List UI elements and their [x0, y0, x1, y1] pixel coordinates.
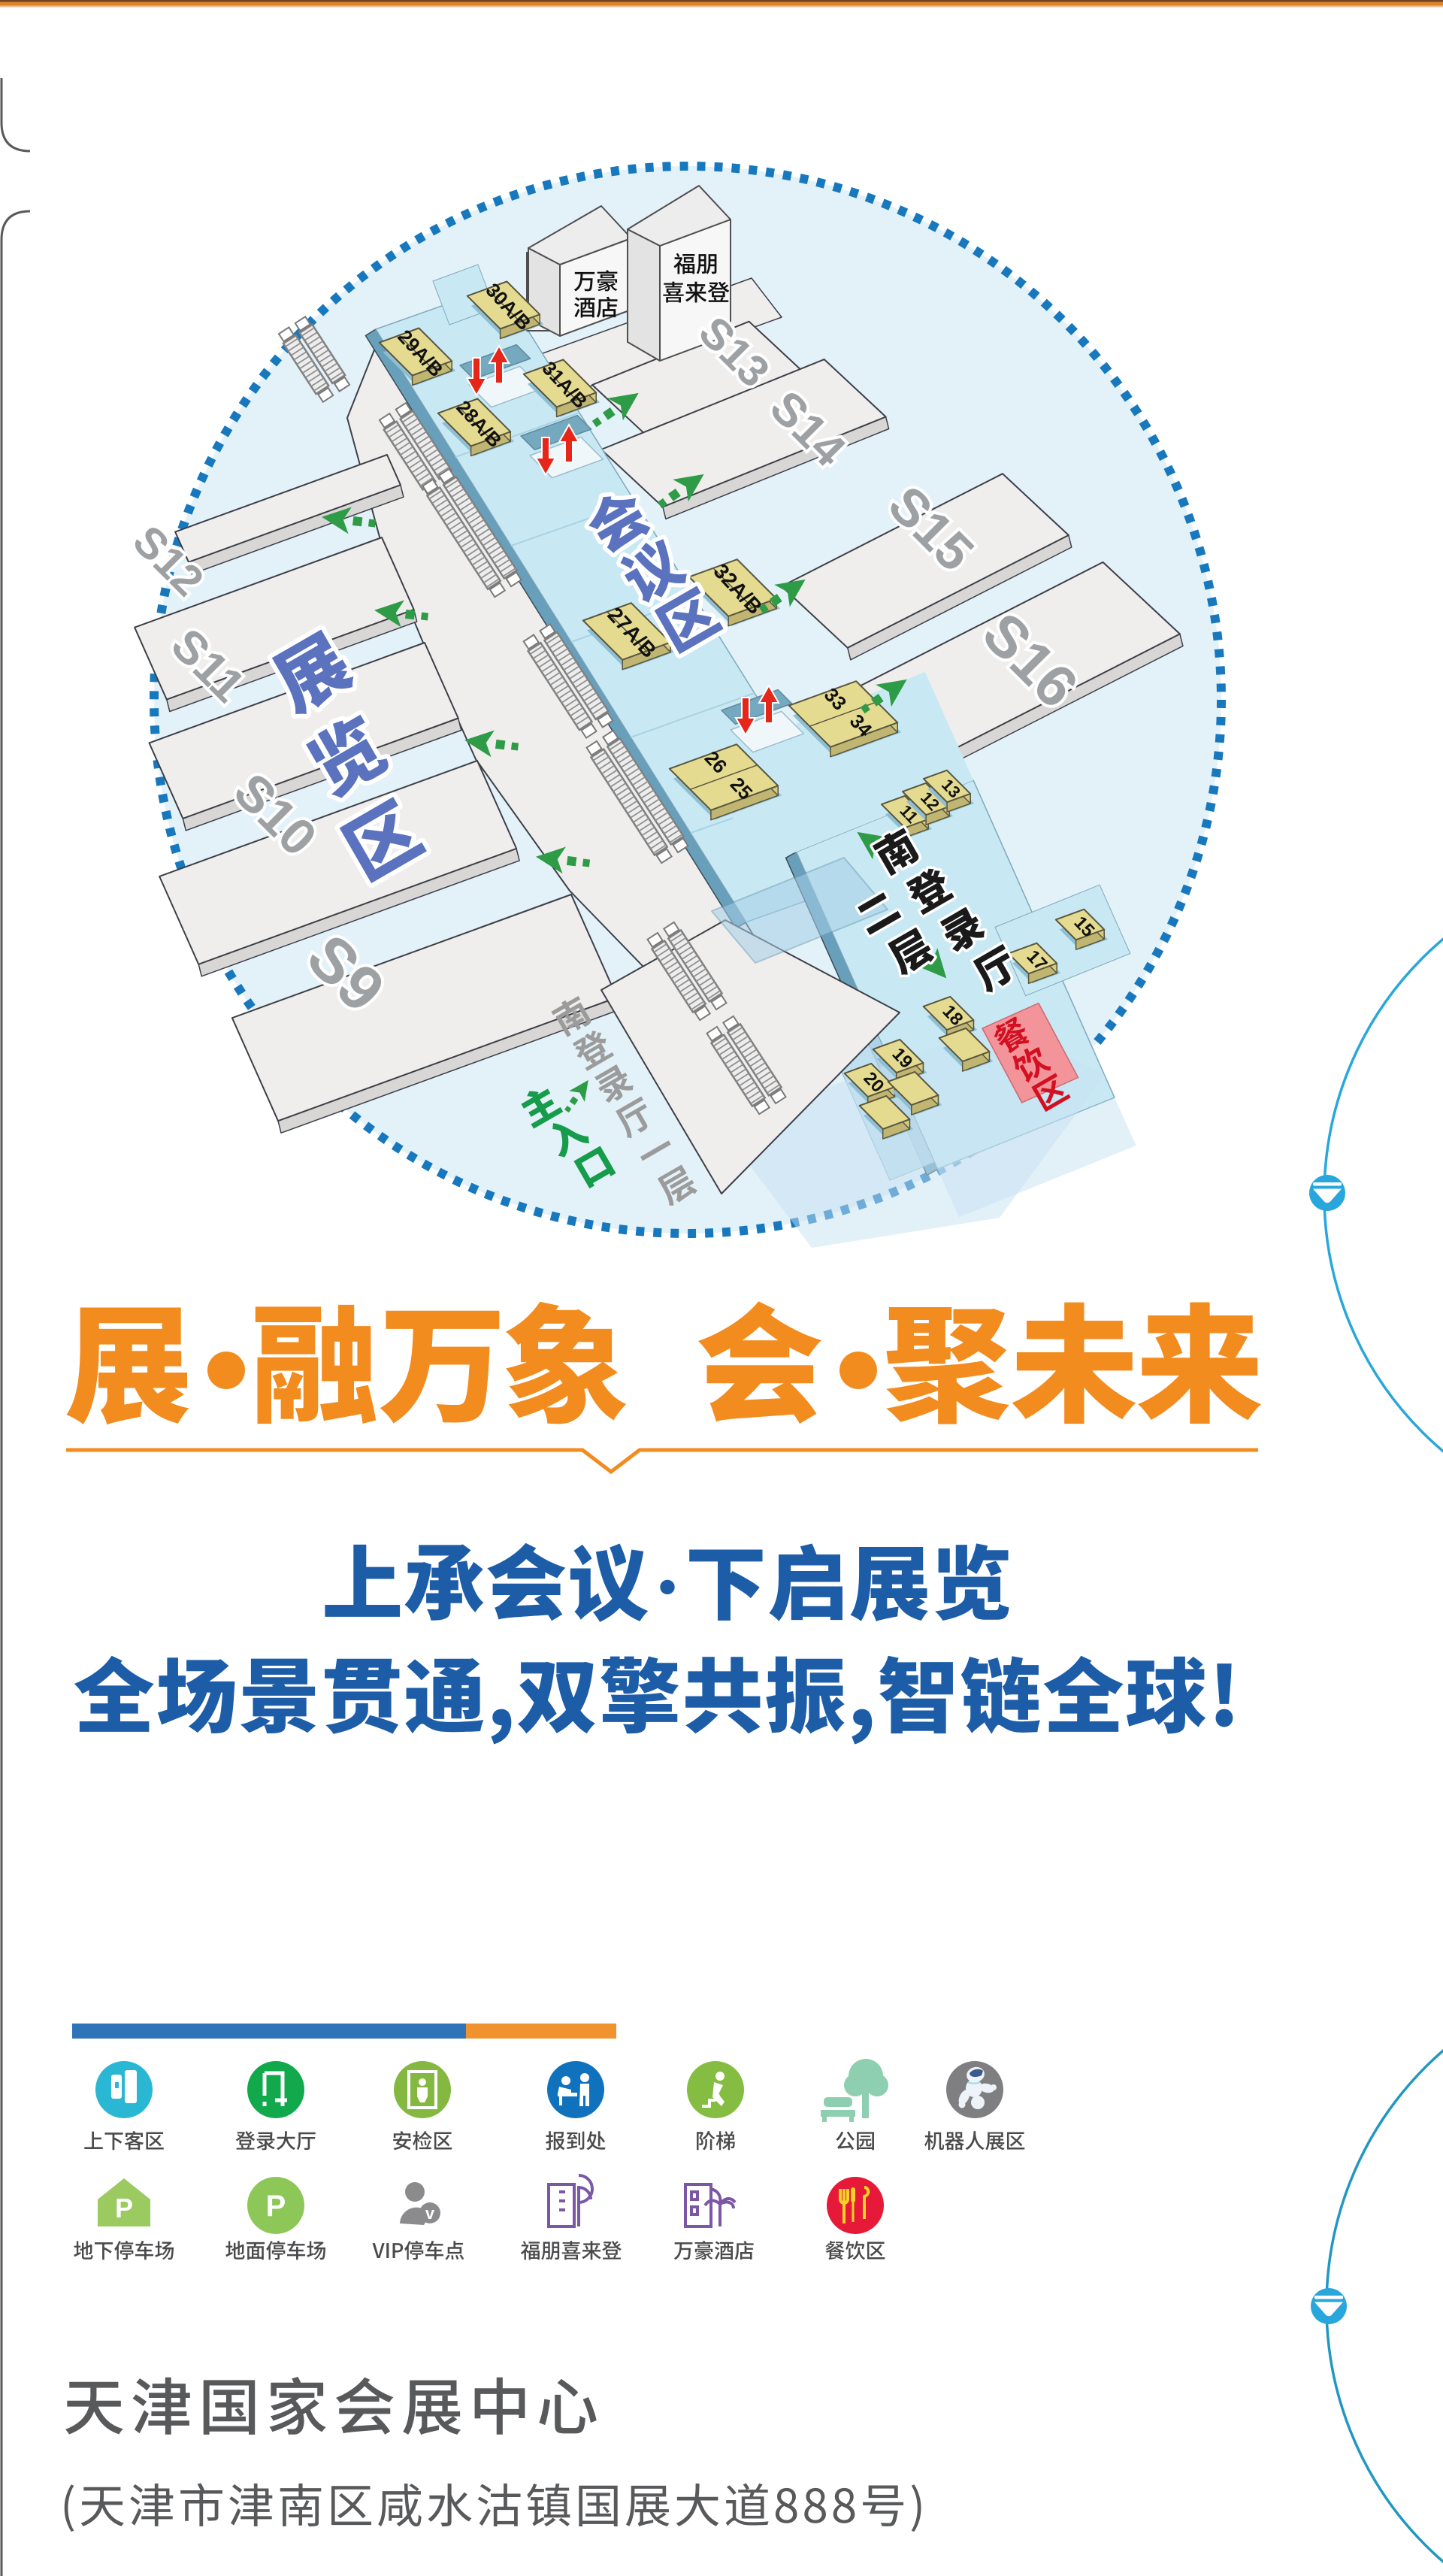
svg-text:P: P — [266, 2190, 286, 2223]
svg-text:P: P — [115, 2193, 133, 2223]
svg-text:v: v — [425, 2204, 435, 2223]
